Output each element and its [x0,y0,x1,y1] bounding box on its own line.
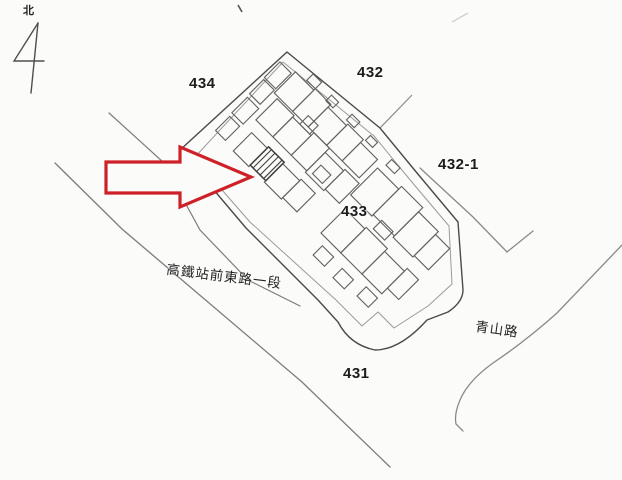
parcel-label-433: 433 [341,203,368,220]
parcel-label-432: 432 [357,64,384,81]
target-building [250,147,284,181]
building-footprint [313,246,334,267]
target-building-hatching [253,150,282,179]
road-side-edges [420,168,622,431]
parcel-label-431: 431 [343,365,370,382]
building-footprint [305,152,343,190]
scan-speck-faint [452,13,468,22]
building-footprint [312,165,330,183]
north-label: 北 [23,2,34,18]
map-canvas [0,0,622,480]
building-footprint [216,116,240,140]
building-footprint [341,227,388,274]
building-footprint [327,124,364,161]
road-side-edge-spur [507,231,533,252]
cadastral-map: 北 434 432 432-1 433 431 高鐵站前東路一段 青山路 [0,0,622,480]
parcel-label-434: 434 [189,75,216,92]
building-footprint [308,107,346,145]
building-footprint [373,186,422,235]
building-footprint [232,97,259,124]
building-footprint [274,72,314,112]
building-footprint [273,117,311,155]
building-footprint [291,133,329,171]
building-footprint [387,268,418,299]
north-arrow-icon [14,23,44,93]
building-footprint [283,179,316,212]
building-footprint [264,164,299,199]
building-footprint [346,114,359,127]
scan-speck [238,5,242,12]
building-footprint [256,99,294,137]
road-side-edge-e [456,245,622,431]
building-footprint [307,74,322,89]
parcel-label-432-1: 432-1 [438,156,479,173]
building-footprint [293,89,331,127]
road-main-edge-sw [55,163,390,467]
building-footprint [386,159,400,173]
building-footprint [300,116,318,134]
building-footprint [365,135,377,147]
block-outer-boundary [180,52,463,350]
building-footprint [233,133,267,167]
building-footprint [357,287,378,308]
building-footprint [362,251,404,293]
road-side-edge-w [420,168,507,252]
building-footprint [333,268,354,289]
building-footprint [414,234,449,269]
building-footprint [393,212,438,257]
parcel-boundary-432-432-1 [380,95,412,128]
